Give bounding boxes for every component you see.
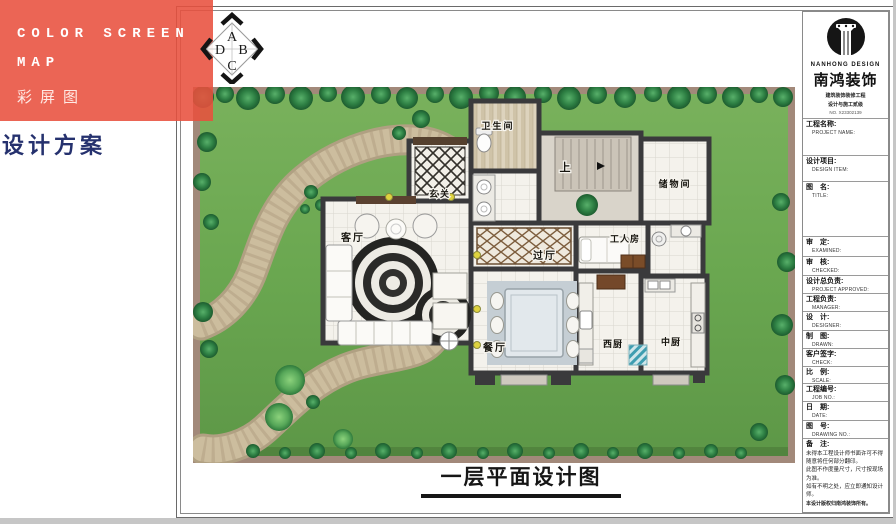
field-examined: 审 定: EXAMINED: bbox=[803, 237, 888, 257]
field-label-en: CHECKED: bbox=[812, 268, 885, 275]
room-label-bathroom: 卫生间 bbox=[481, 120, 514, 132]
room-label-entry: 玄关 bbox=[429, 188, 451, 200]
field-project-name: 工程名称: PROJECT NAME: bbox=[803, 119, 888, 156]
field-label-en: DRAWING NO.: bbox=[812, 432, 885, 439]
field-checked: 审 核: CHECKED: bbox=[803, 257, 888, 276]
field-label-en: PROJECT APPROVED: bbox=[812, 287, 885, 294]
field-designer: 设 计: DESIGNER: bbox=[803, 312, 888, 331]
room-label-chinese-kitchen: 中厨 bbox=[661, 336, 681, 348]
room-label-west-kitchen: 西厨 bbox=[603, 339, 623, 350]
shoe-cabinet bbox=[413, 137, 467, 145]
field-label-zh: 设计总负责: bbox=[806, 278, 885, 287]
field-label-zh: 设计项目: bbox=[806, 158, 885, 167]
field-label-zh: 制 图: bbox=[806, 333, 885, 342]
room-label-hallway: 过厅 bbox=[533, 249, 557, 262]
design-scheme-label: 设计方案 bbox=[2, 128, 106, 160]
compass-letter-c: C bbox=[227, 59, 236, 74]
drawing-title-underline bbox=[421, 494, 621, 498]
field-label-en: MANAGER: bbox=[812, 305, 885, 312]
kitchen-mat bbox=[629, 345, 647, 365]
notes-label: 备 注: bbox=[806, 441, 885, 450]
field-label-zh: 比 例: bbox=[806, 369, 885, 378]
compass-letter-d: D bbox=[215, 43, 225, 58]
screenshot-root: 卫生间 玄关 上 储物间 客厅 过厅 工人房 餐厅 西厨 中厨 一层平面设计图 bbox=[0, 0, 896, 524]
indoor-plant bbox=[576, 194, 598, 216]
notes-box: 备 注: 未得本工程设计师书面许可不得随意将任何部分翻印。 此图不作度量尺寸，尺… bbox=[803, 439, 888, 512]
field-label-zh: 审 核: bbox=[806, 259, 885, 268]
company-qualification-1: 建筑装饰装修工程 bbox=[825, 92, 865, 99]
floor-plan: 卫生间 玄关 上 储物间 客厅 过厅 工人房 餐厅 西厨 中厨 bbox=[193, 87, 795, 463]
field-design-item: 设计项目: DESIGN ITEM: bbox=[803, 156, 888, 182]
field-label-en: CHECK: bbox=[812, 360, 885, 367]
field-label-en: DESIGNER: bbox=[812, 323, 885, 330]
field-label-zh: 图 名: bbox=[806, 184, 885, 193]
field-label-zh: 审 定: bbox=[806, 239, 885, 248]
drawing-caption: 一层平面设计图 bbox=[421, 461, 621, 498]
field-label-zh: 工程编号: bbox=[806, 386, 885, 395]
compass-letter-a: A bbox=[227, 30, 238, 45]
field-label-zh: 图 号: bbox=[806, 423, 885, 432]
screenshot-bottom-edge bbox=[0, 518, 896, 524]
field-label-zh: 日 期: bbox=[806, 404, 885, 413]
field-label-zh: 工程名称: bbox=[806, 121, 885, 130]
room-label-storage: 储物间 bbox=[658, 178, 691, 190]
company-name-en: NANHONG DESIGN bbox=[811, 62, 881, 68]
company-qualification-2: 设计与施工贰级 bbox=[828, 101, 863, 108]
drawing-title: 一层平面设计图 bbox=[421, 461, 621, 491]
field-label-en: TITLE: bbox=[812, 193, 885, 200]
field-drawing-no: 图 号: DRAWING NO.: bbox=[803, 421, 888, 439]
field-project-approved: 设计总负责: PROJECT APPROVED: bbox=[803, 276, 888, 294]
room-label-living: 客厅 bbox=[340, 231, 365, 244]
notes-line: 未得本工程设计师书面许可不得随意将任何部分翻印。 bbox=[806, 450, 885, 467]
company-license-no: NO. X23302139 bbox=[829, 110, 861, 115]
room-label-dining: 餐厅 bbox=[482, 341, 507, 354]
dining-table bbox=[505, 289, 563, 357]
field-label-en: DRAWN: bbox=[812, 342, 885, 349]
field-label-en: DESIGN ITEM: bbox=[812, 167, 885, 174]
diamond-rug bbox=[415, 147, 465, 195]
notes-copyright-line: 本设计版权归南鸿装饰所有。 bbox=[806, 501, 885, 509]
field-label-en: JOB NO.: bbox=[812, 395, 885, 402]
field-label-en: EXAMINED: bbox=[812, 248, 885, 255]
field-label-en: DATE: bbox=[812, 413, 885, 420]
title-block: NANHONG DESIGN 南鸿装饰 建筑装饰装修工程 设计与施工贰级 NO.… bbox=[802, 11, 889, 513]
field-title: 图 名: TITLE: bbox=[803, 182, 888, 237]
color-screen-banner: COLOR SCREEN MAP 彩屏图 bbox=[0, 0, 213, 121]
field-scale: 比 例: SCALE: bbox=[803, 367, 888, 384]
company-logo-box: NANHONG DESIGN 南鸿装饰 建筑装饰装修工程 设计与施工贰级 NO.… bbox=[803, 12, 888, 119]
company-name-zh: 南鸿装饰 bbox=[813, 69, 877, 90]
notes-line: 此图不作度量尺寸，尺寸按现场为准。 bbox=[806, 466, 885, 483]
field-manager: 工程负责: MANAGER: bbox=[803, 294, 888, 312]
drawing-sheet: 卫生间 玄关 上 储物间 客厅 过厅 工人房 餐厅 西厨 中厨 一层平面设计图 bbox=[176, 6, 894, 518]
field-job-no: 工程编号: JOB NO.: bbox=[803, 384, 888, 402]
column-logo-icon bbox=[824, 16, 868, 60]
compass-letter-b: B bbox=[238, 43, 247, 58]
room-label-worker: 工人房 bbox=[610, 233, 640, 245]
banner-line-1: COLOR SCREEN bbox=[17, 26, 190, 42]
notes-line: 如有不明之处，应立即通知设计师。 bbox=[806, 483, 885, 500]
field-date: 日 期: DATE: bbox=[803, 402, 888, 421]
banner-line-2: MAP bbox=[17, 55, 60, 71]
field-drawn: 制 图: DRAWN: bbox=[803, 331, 888, 349]
field-label-zh: 工程负责: bbox=[806, 296, 885, 305]
field-label-zh: 客户签字: bbox=[806, 351, 885, 360]
banner-line-3: 彩屏图 bbox=[17, 86, 86, 107]
field-label-zh: 设 计: bbox=[806, 314, 885, 323]
compass-icon: A B C D bbox=[199, 12, 265, 84]
room-label-stairs-up: 上 bbox=[560, 160, 571, 174]
field-label-en: PROJECT NAME: bbox=[812, 130, 885, 137]
field-client-signature: 客户签字: CHECK: bbox=[803, 349, 888, 367]
